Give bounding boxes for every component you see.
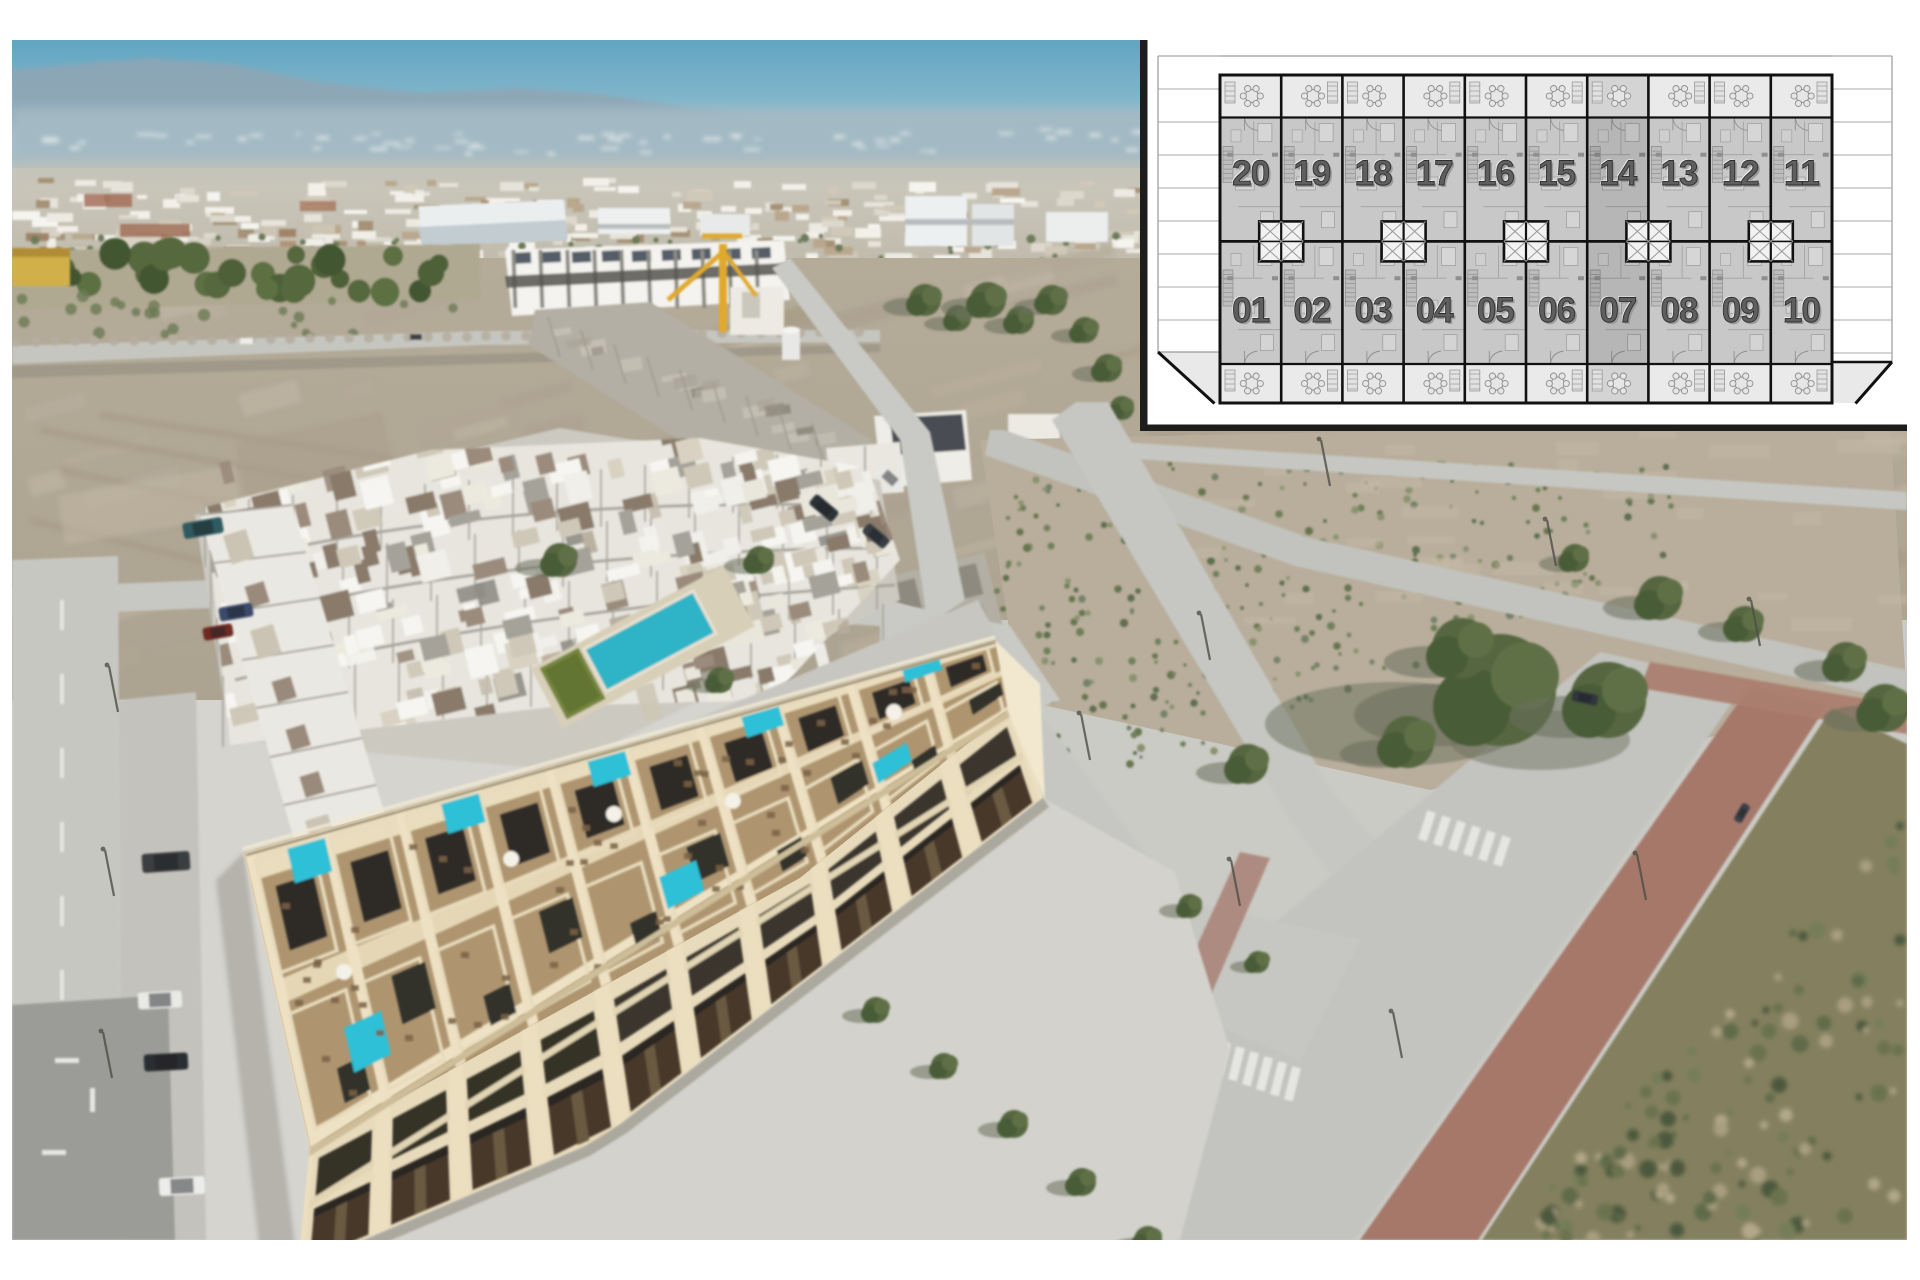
svg-text:12: 12 xyxy=(1722,154,1759,193)
svg-text:11: 11 xyxy=(1784,154,1820,193)
svg-text:09: 09 xyxy=(1722,291,1759,330)
svg-text:10: 10 xyxy=(1783,291,1820,330)
svg-text:13: 13 xyxy=(1661,154,1698,193)
svg-text:14: 14 xyxy=(1599,154,1637,193)
svg-text:19: 19 xyxy=(1293,154,1330,193)
svg-text:03: 03 xyxy=(1355,291,1392,330)
svg-text:04: 04 xyxy=(1416,291,1454,330)
svg-text:06: 06 xyxy=(1538,291,1575,330)
svg-text:15: 15 xyxy=(1538,154,1575,193)
svg-text:20: 20 xyxy=(1232,154,1269,193)
svg-text:02: 02 xyxy=(1293,291,1330,330)
svg-text:18: 18 xyxy=(1355,154,1392,193)
svg-text:01: 01 xyxy=(1232,291,1269,330)
svg-text:17: 17 xyxy=(1416,154,1453,193)
svg-text:08: 08 xyxy=(1661,291,1698,330)
svg-text:16: 16 xyxy=(1477,154,1514,193)
svg-text:07: 07 xyxy=(1599,291,1636,330)
svg-text:05: 05 xyxy=(1477,291,1514,330)
